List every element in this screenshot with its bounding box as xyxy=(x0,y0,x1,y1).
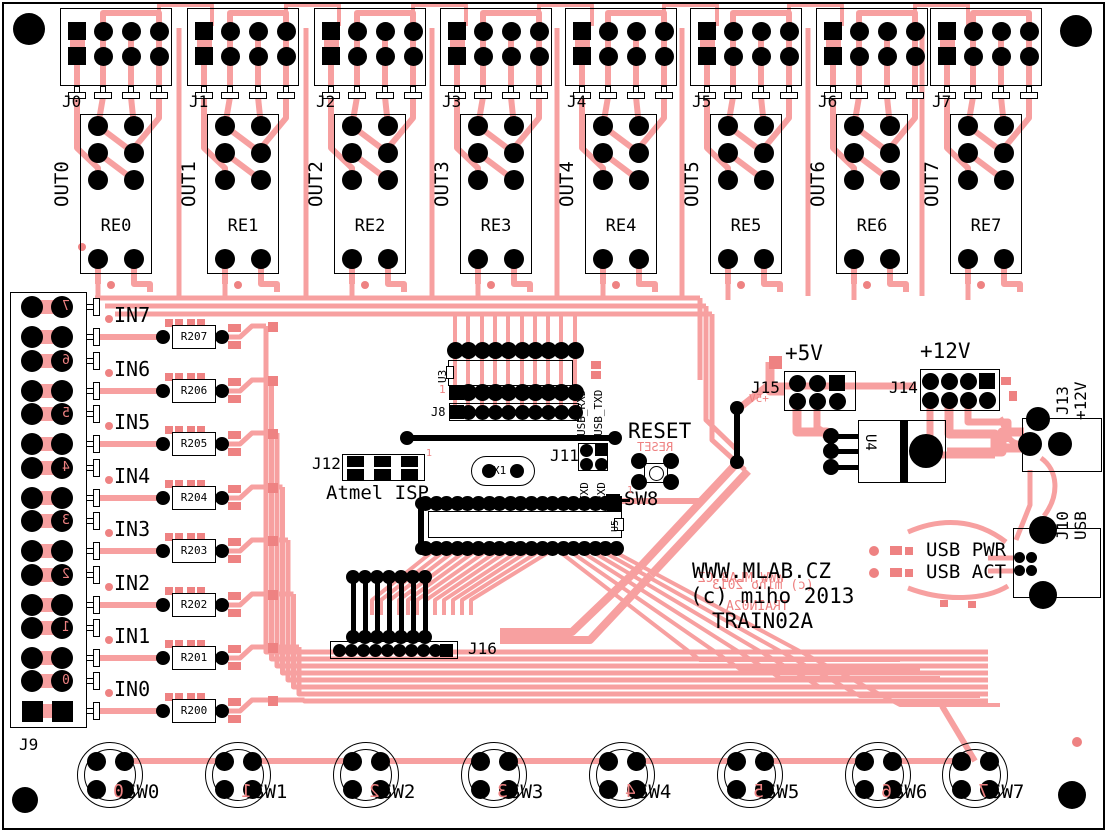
pad xyxy=(964,47,983,66)
pad xyxy=(809,375,826,392)
j12-pin1-mark: 1 xyxy=(426,449,432,459)
pad xyxy=(21,670,43,692)
j11-txd-label: TXD xyxy=(579,482,590,502)
pad xyxy=(960,392,977,409)
pad xyxy=(504,249,524,269)
sw-index-mark: 1 xyxy=(241,783,252,801)
pad xyxy=(471,752,490,771)
pad xyxy=(994,170,1014,190)
sw-label: SW2 xyxy=(381,783,415,802)
smd-pad xyxy=(228,698,241,706)
connector-lead xyxy=(93,459,100,477)
wire-jumper xyxy=(411,577,416,637)
pad xyxy=(343,752,362,771)
pad xyxy=(958,170,978,190)
pad xyxy=(221,22,240,41)
relay-label: RE5 xyxy=(724,218,768,235)
resistor-label: R202 xyxy=(172,599,216,610)
smd-pad xyxy=(905,569,913,577)
pad xyxy=(844,170,864,190)
u5-outline xyxy=(428,511,622,538)
connector-label: J4 xyxy=(567,94,586,110)
pad-square xyxy=(448,47,466,65)
connector-lead xyxy=(502,92,520,99)
connector-lead xyxy=(599,92,617,99)
pad xyxy=(593,249,613,269)
pad xyxy=(599,47,618,66)
pad xyxy=(251,170,271,190)
pad-square xyxy=(607,496,622,511)
pad xyxy=(789,375,806,392)
pad xyxy=(1026,552,1037,563)
sw-index-mark: 2 xyxy=(369,783,380,801)
j9-label: J9 xyxy=(19,737,38,753)
connector-lead xyxy=(724,92,742,99)
in-net-label: IN1 xyxy=(114,626,150,646)
out-net-label: OUT4 xyxy=(558,161,577,207)
connector-lead xyxy=(93,672,100,690)
pad xyxy=(752,47,771,66)
pad xyxy=(378,143,398,163)
relay-0 xyxy=(80,114,152,274)
u3-outline xyxy=(448,360,573,386)
pad-square xyxy=(595,444,607,456)
pad xyxy=(1014,552,1025,563)
pad xyxy=(51,647,73,669)
connector-lead xyxy=(249,92,267,99)
connector-label: J7 xyxy=(932,94,951,110)
connector-lead xyxy=(93,702,100,720)
pad xyxy=(655,22,674,41)
connector-lead xyxy=(404,92,422,99)
smd-pad xyxy=(268,590,278,600)
pad xyxy=(243,752,262,771)
pad-square xyxy=(322,47,340,65)
smd-pad xyxy=(228,378,241,386)
pad-square xyxy=(22,701,43,722)
in-net-label: IN2 xyxy=(114,573,150,593)
plus12v-net-label: +12V xyxy=(920,341,971,362)
mounting-hole xyxy=(13,13,45,45)
relay-label: RE6 xyxy=(850,218,894,235)
pad xyxy=(1029,581,1057,609)
pad xyxy=(124,143,144,163)
pad xyxy=(21,540,43,562)
pad xyxy=(51,487,73,509)
pad xyxy=(754,143,774,163)
smd-pad xyxy=(591,371,601,379)
connector-lead xyxy=(655,92,673,99)
smd-pad xyxy=(228,715,241,723)
pad-square xyxy=(401,469,418,480)
pad xyxy=(844,116,864,136)
relay-5 xyxy=(710,114,782,274)
connector-label: J3 xyxy=(442,94,461,110)
pad xyxy=(122,22,141,41)
pad xyxy=(51,380,73,402)
out-net-label: OUT3 xyxy=(433,161,452,207)
pad xyxy=(51,326,73,348)
pad xyxy=(504,116,524,136)
pad xyxy=(21,647,43,669)
pad xyxy=(474,22,493,41)
smd-pad xyxy=(228,485,241,493)
smd-pad xyxy=(890,546,902,555)
pad xyxy=(629,116,649,136)
pad xyxy=(1026,407,1050,431)
pad xyxy=(789,393,806,410)
j11-label: J11 xyxy=(550,448,579,464)
pad xyxy=(88,143,108,163)
resistor-label: R206 xyxy=(172,385,216,396)
pad xyxy=(964,22,983,41)
pad xyxy=(393,644,406,657)
pad xyxy=(277,47,296,66)
j9-index-mark: 5 xyxy=(62,407,70,420)
pad xyxy=(941,392,958,409)
pad xyxy=(404,22,423,41)
pad-square xyxy=(979,373,995,389)
reset-label: RESET xyxy=(628,421,691,442)
pad xyxy=(809,393,826,410)
pad xyxy=(980,752,999,771)
pad xyxy=(94,22,113,41)
pad xyxy=(922,373,939,390)
connector-lead xyxy=(93,649,100,667)
pad xyxy=(87,752,106,771)
pad xyxy=(474,47,493,66)
pad xyxy=(593,143,613,163)
smd-pad xyxy=(228,592,241,600)
in-net-label: IN7 xyxy=(114,305,150,325)
plus5v-net-mirror: +5V xyxy=(749,393,769,404)
relay-label: RE7 xyxy=(964,218,1008,235)
mounting-hole xyxy=(1060,15,1092,47)
pad xyxy=(51,540,73,562)
pad-square xyxy=(573,22,591,40)
j16-label: J16 xyxy=(468,641,497,657)
atmel-isp-caption: Atmel ISP xyxy=(326,484,429,503)
pad xyxy=(823,443,839,459)
smd-pad xyxy=(268,536,278,546)
pad xyxy=(221,47,240,66)
connector-lead xyxy=(122,92,140,99)
mounting-hole xyxy=(1058,781,1086,809)
pad-square xyxy=(195,47,213,65)
relay-2 xyxy=(334,114,406,274)
connector-lead xyxy=(93,596,100,614)
connector-lead xyxy=(93,566,100,584)
pad xyxy=(504,170,524,190)
pad xyxy=(277,22,296,41)
pad xyxy=(593,170,613,190)
pad xyxy=(883,752,902,771)
pad xyxy=(215,437,229,451)
j9-index-mark: 4 xyxy=(62,461,70,474)
pad xyxy=(504,143,524,163)
pad xyxy=(880,116,900,136)
pad xyxy=(880,249,900,269)
pad xyxy=(1018,432,1042,456)
in-net-label: IN6 xyxy=(114,359,150,379)
pad xyxy=(530,47,549,66)
pad xyxy=(249,47,268,66)
pad xyxy=(378,249,398,269)
smd-pad xyxy=(890,568,902,577)
resistor-label: R204 xyxy=(172,492,216,503)
pad xyxy=(215,491,229,505)
sw-label: SW6 xyxy=(893,783,927,802)
smd-pad xyxy=(968,601,976,608)
pad xyxy=(94,47,113,66)
sw-index-mark: 7 xyxy=(978,783,989,801)
smd-pad xyxy=(228,538,241,546)
pad xyxy=(994,143,1014,163)
pad xyxy=(115,752,134,771)
pad xyxy=(87,780,106,799)
pad xyxy=(730,455,744,469)
relay-1 xyxy=(207,114,279,274)
sw-label: SW5 xyxy=(765,783,799,802)
resistor-label: R207 xyxy=(172,331,216,342)
pad xyxy=(471,780,490,799)
connector-lead xyxy=(530,92,548,99)
pad xyxy=(829,393,846,410)
pad-square xyxy=(824,47,842,65)
pad xyxy=(251,143,271,163)
pad xyxy=(215,384,229,398)
pad xyxy=(580,458,593,471)
connector-lead xyxy=(474,92,492,99)
pad xyxy=(655,47,674,66)
pad xyxy=(88,170,108,190)
pad xyxy=(992,47,1011,66)
connector-lead xyxy=(376,92,394,99)
pad xyxy=(400,431,414,445)
pad xyxy=(530,22,549,41)
pad xyxy=(88,116,108,136)
pad xyxy=(468,249,488,269)
connector-lead xyxy=(850,92,868,99)
pad xyxy=(21,380,43,402)
u4-label: U4 xyxy=(863,434,877,451)
wire-jumper xyxy=(399,577,404,637)
pad xyxy=(922,392,939,409)
connector-lead xyxy=(627,92,645,99)
pad xyxy=(461,405,476,420)
pad xyxy=(780,22,799,41)
pad xyxy=(21,617,43,639)
out-net-label: OUT0 xyxy=(53,161,72,207)
j11-rxd-label: RXD xyxy=(596,482,607,502)
j10-net-label: USB xyxy=(1073,511,1089,540)
smd-pad xyxy=(769,356,782,369)
pad-square xyxy=(448,22,466,40)
smd-pad xyxy=(228,555,241,563)
pad xyxy=(599,752,618,771)
x1-label: X1 xyxy=(493,465,506,476)
pad xyxy=(251,249,271,269)
pad xyxy=(150,22,169,41)
pad xyxy=(1014,565,1025,576)
pad-square xyxy=(440,644,453,657)
wire-jumper xyxy=(363,577,368,637)
pad xyxy=(215,598,229,612)
relay-label: RE1 xyxy=(221,218,265,235)
pad-square xyxy=(374,469,391,480)
sw-label: SW4 xyxy=(637,783,671,802)
pad xyxy=(752,22,771,41)
in-net-label: IN5 xyxy=(114,412,150,432)
pad xyxy=(718,143,738,163)
pad xyxy=(342,116,362,136)
pad-square xyxy=(824,22,842,40)
pad xyxy=(724,22,743,41)
pad xyxy=(844,143,864,163)
pad xyxy=(348,47,367,66)
pad xyxy=(627,47,646,66)
pad xyxy=(21,296,43,318)
pad xyxy=(627,752,646,771)
u4-hole xyxy=(909,434,943,468)
connector-label: J1 xyxy=(189,94,208,110)
pad xyxy=(21,433,43,455)
pad xyxy=(994,249,1014,269)
connector-lead xyxy=(93,542,100,560)
pad xyxy=(122,47,141,66)
pad xyxy=(124,170,144,190)
pad xyxy=(958,143,978,163)
pad xyxy=(502,22,521,41)
connector-lead xyxy=(93,405,100,423)
pad xyxy=(994,116,1014,136)
smd-pad xyxy=(228,324,241,332)
sw-label: SW7 xyxy=(990,783,1024,802)
connector-lead xyxy=(221,92,239,99)
connector-label: J5 xyxy=(692,94,711,110)
mounting-hole xyxy=(12,787,38,813)
pad xyxy=(156,598,170,612)
pad xyxy=(21,350,43,372)
out-net-label: OUT7 xyxy=(923,161,942,207)
pad-square xyxy=(938,22,956,40)
sw-index-mark: 5 xyxy=(753,783,764,801)
pad-square xyxy=(347,469,364,480)
j11-usb-txd-label: USB_TXD xyxy=(593,390,604,436)
smd-pad xyxy=(228,662,241,670)
pad xyxy=(1026,565,1037,576)
pad xyxy=(502,47,521,66)
pad-square xyxy=(322,22,340,40)
connector-lead xyxy=(277,92,295,99)
j14-label: J14 xyxy=(889,380,918,396)
pad-square xyxy=(698,22,716,40)
smd-pad xyxy=(940,600,948,607)
pad xyxy=(249,22,268,41)
pad-square xyxy=(374,456,391,467)
pad xyxy=(342,170,362,190)
out-net-label: OUT6 xyxy=(809,161,828,207)
wire-jumper xyxy=(423,577,428,637)
pad xyxy=(730,401,744,415)
pad xyxy=(1020,47,1039,66)
pad xyxy=(992,22,1011,41)
plus5v-net-label: +5V xyxy=(785,343,823,364)
smd-pad xyxy=(228,645,241,653)
pad xyxy=(418,570,432,584)
resistor-label: R203 xyxy=(172,545,216,556)
j9-index-mark: 3 xyxy=(62,514,70,527)
pad xyxy=(21,510,43,532)
pad xyxy=(855,780,874,799)
pad xyxy=(251,116,271,136)
sw-index-mark: 3 xyxy=(497,783,508,801)
sw-label: SW1 xyxy=(253,783,287,802)
pad xyxy=(215,752,234,771)
relay-3 xyxy=(460,114,532,274)
smd-pad xyxy=(228,341,241,349)
board-copyright: (c) miho 2013 xyxy=(690,586,854,607)
wire-jumper xyxy=(734,408,740,462)
wire-jumper xyxy=(375,577,380,637)
pad xyxy=(880,143,900,163)
pad xyxy=(629,143,649,163)
smd-pad xyxy=(905,547,913,555)
pad xyxy=(21,457,43,479)
pad xyxy=(499,752,518,771)
smd-pad xyxy=(268,696,278,706)
connector-label: J6 xyxy=(818,94,837,110)
j10-label: J10 xyxy=(1055,511,1071,540)
pad xyxy=(376,22,395,41)
connector-lead xyxy=(906,92,924,99)
pad xyxy=(906,47,925,66)
pad xyxy=(1020,22,1039,41)
out-net-label: OUT2 xyxy=(307,161,326,207)
pad xyxy=(554,405,569,420)
pad xyxy=(376,47,395,66)
pad xyxy=(215,330,229,344)
pad xyxy=(124,116,144,136)
sw-index-mark: 6 xyxy=(881,783,892,801)
smd-pad xyxy=(228,395,241,403)
pad xyxy=(371,752,390,771)
pad xyxy=(941,373,958,390)
pad xyxy=(593,116,613,136)
pad xyxy=(627,22,646,41)
pad xyxy=(156,437,170,451)
pad xyxy=(952,780,971,799)
j9-index-mark: 0 xyxy=(62,674,70,687)
connector-lead xyxy=(93,489,100,507)
pad xyxy=(51,433,73,455)
j9-index-mark: 1 xyxy=(62,621,70,634)
pad xyxy=(21,326,43,348)
connector-lead xyxy=(992,92,1010,99)
pad xyxy=(156,704,170,718)
pad xyxy=(952,752,971,771)
pad xyxy=(215,249,235,269)
sw-label: SW3 xyxy=(509,783,543,802)
pad xyxy=(823,428,839,444)
pad xyxy=(215,651,229,665)
pad xyxy=(754,170,774,190)
pad xyxy=(718,170,738,190)
pad xyxy=(754,116,774,136)
pad xyxy=(599,780,618,799)
pad xyxy=(468,170,488,190)
pad-square xyxy=(68,47,86,65)
